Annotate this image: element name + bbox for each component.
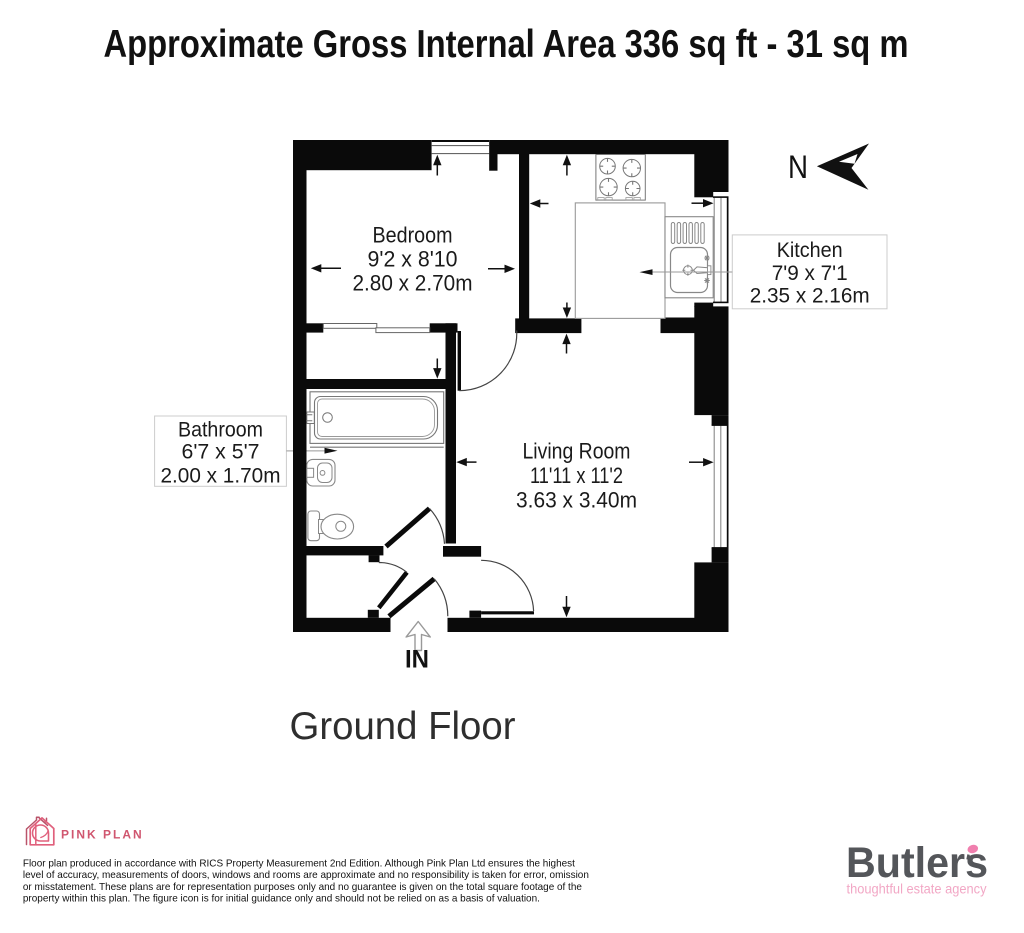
svg-text:Floor plan produced in accorda: Floor plan produced in accordance with R…	[23, 859, 575, 870]
svg-text:Bedroom: Bedroom	[373, 222, 453, 247]
svg-text:Living Room: Living Room	[523, 439, 631, 464]
svg-text:Ground Floor: Ground Floor	[290, 705, 516, 748]
svg-text:2.35 x 2.16m: 2.35 x 2.16m	[750, 285, 870, 308]
svg-text:2.80 x 2.70m: 2.80 x 2.70m	[353, 271, 473, 296]
svg-text:or misstatement. These plans a: or misstatement. These plans are for rep…	[23, 882, 582, 893]
svg-text:N: N	[788, 149, 808, 185]
svg-text:PINK PLAN: PINK PLAN	[61, 828, 144, 842]
svg-text:3.63 x 3.40m: 3.63 x 3.40m	[516, 488, 637, 513]
svg-text:Kitchen: Kitchen	[777, 239, 843, 262]
svg-text:11'11 x 11'2: 11'11 x 11'2	[530, 463, 623, 488]
svg-text:Bathroom: Bathroom	[178, 419, 263, 442]
svg-text:level of accuracy, measurement: level of accuracy, measurements of doors…	[23, 870, 589, 881]
svg-text:7'9 x 7'1: 7'9 x 7'1	[772, 262, 848, 285]
svg-text:9'2 x 8'10: 9'2 x 8'10	[368, 247, 458, 272]
svg-text:2.00 x 1.70m: 2.00 x 1.70m	[161, 464, 281, 487]
svg-text:IN: IN	[405, 646, 429, 674]
svg-text:Approximate Gross Internal Are: Approximate Gross Internal Area 336 sq f…	[104, 23, 909, 66]
svg-text:thoughtful estate agency: thoughtful estate agency	[847, 881, 987, 897]
svg-text:6'7 x 5'7: 6'7 x 5'7	[182, 441, 260, 464]
svg-text:property within this plan. The: property within this plan. The figure ic…	[23, 893, 540, 904]
